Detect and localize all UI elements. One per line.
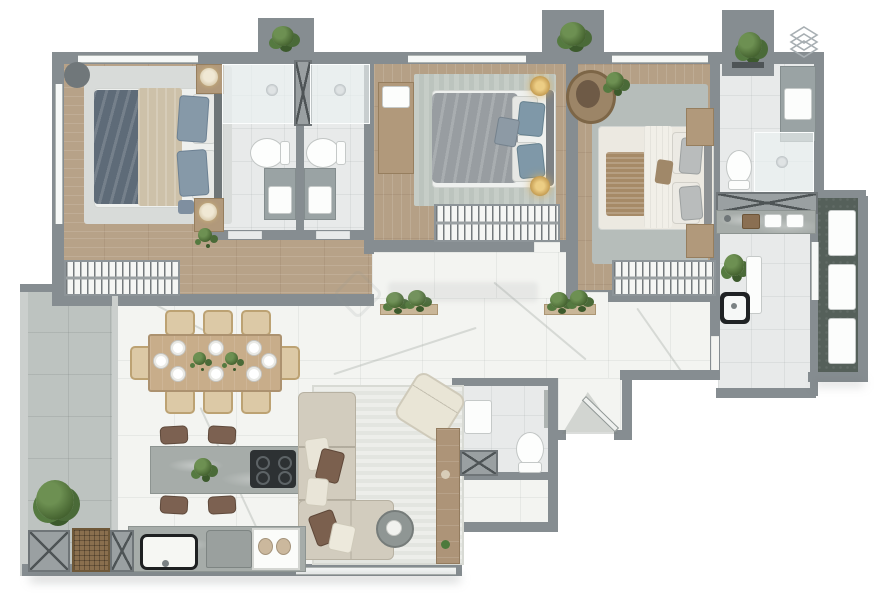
wall-entry-bottom-right (614, 430, 632, 440)
service-duct-left (28, 530, 70, 572)
balcony-left-floor (26, 290, 114, 568)
gas-hob (250, 450, 296, 488)
console-vase (441, 470, 450, 479)
bar-stool (160, 425, 189, 444)
master-foot-stool (178, 200, 194, 214)
balcony-right-glass-door (811, 242, 819, 300)
common-bath-duct (460, 450, 498, 476)
service-faucet (162, 560, 169, 567)
common-bath-sink (464, 400, 492, 434)
watermark-text-blur (388, 282, 538, 302)
ensuite2-showerhead (334, 84, 346, 96)
jar-1 (258, 538, 273, 555)
place-setting (261, 353, 277, 369)
balcony-planter-2 (828, 264, 856, 310)
balcony-left-glass-wall (112, 290, 118, 568)
bedroom2-lamp-top (530, 76, 550, 96)
place-setting (208, 340, 224, 356)
bed-gray-pillow (679, 185, 704, 221)
bedroom2-door-opening (534, 242, 560, 252)
drop-shadow-bottom (30, 574, 460, 582)
floor-plan-canvas (0, 0, 889, 600)
place-setting (208, 366, 224, 382)
bedroom2-lamp-bottom (530, 176, 550, 196)
service-duct-mid (110, 530, 134, 572)
window-master-left (55, 84, 63, 224)
console-green-bottle (441, 540, 450, 549)
wall-left-outer-balcony (20, 284, 28, 576)
window-master-top (78, 55, 198, 63)
ensuite1-sink (268, 186, 292, 214)
utility-item-2 (786, 214, 804, 228)
ensuite1-shower (222, 64, 294, 124)
window-bedroom2-top (408, 55, 526, 63)
bedroom3-nightstand-bottom (686, 224, 714, 258)
utility-faucet (724, 215, 731, 222)
place-setting (246, 366, 262, 382)
master-corner-table (64, 62, 90, 88)
bar-stool (208, 495, 237, 514)
bed-slate-blanket (94, 90, 142, 204)
common-bath-toilet (516, 432, 544, 466)
bedroom2-bed (432, 90, 554, 186)
ensuite2-toilet (306, 138, 340, 168)
bed-brown-pillow (654, 159, 673, 185)
planter-plants-2 (550, 292, 568, 308)
bed-blue-pillow (516, 143, 545, 180)
kitchen-plant (724, 254, 744, 276)
jar-2 (276, 538, 291, 555)
planter-plants-2b (570, 290, 588, 306)
ensuite1-showerhead (266, 84, 278, 96)
bathroom3-showerhead (776, 156, 788, 168)
bed-headboard (546, 90, 554, 186)
sofa-cream-pillow (305, 477, 330, 507)
wall-between-ensuite-baths (296, 120, 304, 238)
ensuite1-toilet-tank (280, 141, 290, 165)
wall-entry-top-right (620, 370, 720, 380)
ensuite2-toilet-tank (336, 141, 346, 165)
wall-kitchen-bottom (716, 388, 816, 398)
bar-stool (160, 495, 189, 514)
hob-burner (256, 471, 270, 485)
nook-plant-1 (272, 26, 294, 46)
bedroom2-dresser-unit (382, 86, 410, 108)
nook-plant-3 (738, 32, 762, 58)
wall-hall-bottom (448, 522, 558, 532)
service-sink (140, 534, 198, 570)
bed-headboard (214, 88, 222, 206)
common-bath-glass-partition (544, 390, 548, 428)
balcony-planter-3 (828, 318, 856, 364)
window-bedroom3-top (612, 55, 708, 63)
kitchen-faucet (731, 303, 737, 309)
place-setting (170, 340, 186, 356)
bedroom3-plant (606, 72, 624, 90)
balcony-left-shrub (36, 480, 74, 520)
place-setting (170, 366, 186, 382)
nook-plant-2 (560, 22, 586, 46)
bedroom3-wardrobe (612, 260, 716, 296)
drop-shadow-balcony (814, 380, 864, 386)
woven-doormat (72, 528, 110, 572)
bathroom3-toilet-tank (728, 180, 750, 190)
master-bed (94, 88, 222, 206)
dining-chair (165, 310, 195, 336)
ensuite2-door-opening (316, 231, 350, 239)
dining-chair (203, 310, 233, 336)
dining-chair (241, 310, 271, 336)
rattan-chair-cushion (576, 80, 600, 108)
bed-blue-pillow (176, 95, 209, 143)
balcony-planter-1 (828, 210, 856, 256)
wall-bath-top (452, 378, 556, 386)
master-lamp-bottom (199, 203, 217, 221)
hob-burner (278, 471, 292, 485)
utility-tray (742, 214, 760, 229)
bathroom3-door (732, 62, 764, 68)
bed-blue-pillow (176, 149, 209, 197)
layers-diamond-icon (786, 24, 822, 60)
utility-item-1 (764, 214, 782, 228)
bar-stool (208, 425, 237, 444)
bed-knit-throw (606, 152, 646, 216)
ensuite2-sink (308, 186, 332, 214)
place-setting (153, 353, 169, 369)
wall-hall-right (548, 436, 558, 532)
hob-burner (278, 456, 292, 470)
master-plant (198, 228, 212, 242)
ensuite1-toilet (250, 138, 284, 168)
wall-balcony-right-outer (858, 196, 868, 380)
bed-blue-pillow (516, 101, 545, 138)
ensuite1-door-opening (228, 231, 262, 239)
bathroom3-sink (784, 88, 812, 120)
master-lamp-top (200, 68, 218, 86)
bed-beige-duvet (138, 88, 182, 206)
bedroom3-nightstand-top (686, 108, 714, 146)
bedroom2-wardrobe (434, 204, 560, 242)
master-wardrobe (64, 260, 180, 296)
bathroom3-toilet (726, 150, 752, 184)
hob-burner (256, 456, 270, 470)
fruit-bowl (194, 458, 212, 476)
table-centerpiece-1 (193, 352, 206, 365)
common-bath-toilet-tank (518, 462, 542, 473)
table-centerpiece-2 (225, 352, 238, 365)
place-setting (246, 340, 262, 356)
coffee-table-tray (386, 520, 402, 536)
service-appliance (206, 530, 252, 568)
wall-entry-left (548, 378, 558, 436)
